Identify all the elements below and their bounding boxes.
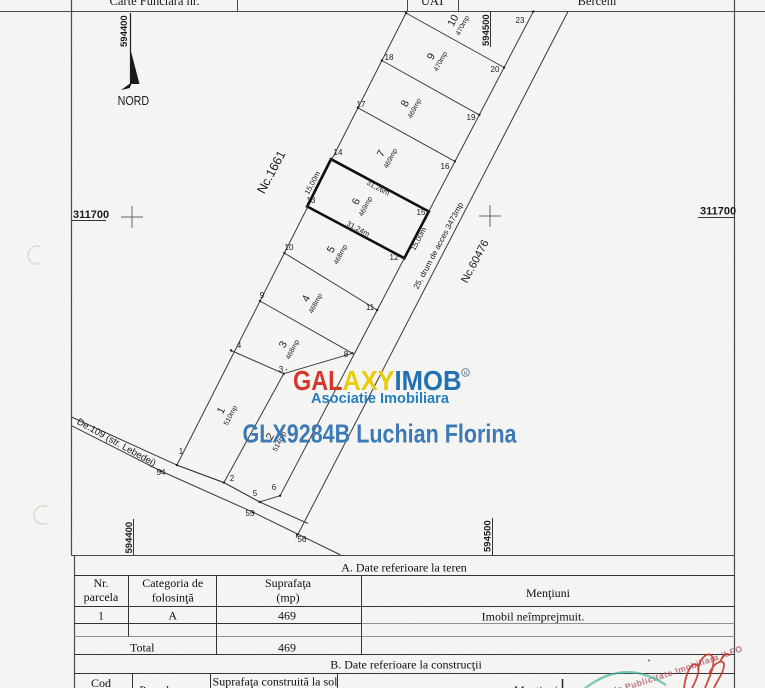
svg-text:8: 8	[344, 350, 349, 359]
svg-text:B. Date referioare la construc: B. Date referioare la construcţii	[330, 658, 482, 672]
svg-text:311700: 311700	[700, 206, 736, 218]
svg-text:1: 1	[98, 609, 104, 623]
svg-text:Menţiuni: Menţiuni	[514, 683, 559, 688]
svg-text:594400: 594400	[124, 522, 135, 554]
svg-text:15: 15	[417, 208, 426, 217]
svg-text:23: 23	[516, 16, 525, 25]
svg-text:17: 17	[357, 100, 366, 109]
svg-text:Asociatie Imobiliara: Asociatie Imobiliara	[311, 391, 450, 407]
svg-text:19: 19	[467, 113, 476, 122]
svg-text:11: 11	[366, 303, 375, 312]
svg-text:18: 18	[385, 53, 394, 62]
svg-text:9: 9	[260, 291, 265, 300]
svg-text:469: 469	[278, 641, 296, 655]
svg-text:55: 55	[246, 509, 255, 518]
svg-text:Imobil neîmprejmuit.: Imobil neîmprejmuit.	[482, 610, 585, 624]
svg-text:Suprafaţa construită la sol: Suprafaţa construită la sol	[213, 675, 339, 688]
svg-text:A. Date referioare la teren: A. Date referioare la teren	[341, 561, 467, 575]
svg-text:311700: 311700	[73, 209, 109, 221]
svg-text:3: 3	[279, 365, 284, 374]
svg-text:2: 2	[230, 474, 235, 483]
svg-text:594400: 594400	[119, 15, 130, 47]
svg-text:Suprafaţa: Suprafaţa	[265, 576, 312, 590]
svg-text:Parcela: Parcela	[139, 683, 175, 688]
svg-text:parcela: parcela	[84, 590, 119, 604]
svg-text:Total: Total	[130, 641, 155, 655]
svg-text:4: 4	[237, 341, 242, 350]
svg-text:14: 14	[334, 148, 343, 157]
svg-text:GLX9284B Luchian Florina: GLX9284B Luchian Florina	[243, 419, 517, 449]
svg-text:Berceni: Berceni	[578, 0, 617, 8]
svg-text:UAT: UAT	[421, 0, 446, 8]
svg-text:594500: 594500	[481, 14, 492, 46]
svg-text:594500: 594500	[483, 520, 494, 552]
svg-text:20: 20	[491, 65, 500, 74]
svg-text:Cod: Cod	[91, 676, 111, 688]
svg-text:469: 469	[278, 609, 296, 623]
svg-text:54: 54	[157, 468, 166, 477]
svg-text:folosinţă: folosinţă	[152, 591, 195, 605]
svg-text:12: 12	[390, 253, 399, 262]
svg-text:16: 16	[441, 162, 450, 171]
svg-text:(mp): (mp)	[276, 591, 299, 605]
svg-text:NORD: NORD	[118, 93, 150, 108]
svg-text:56: 56	[298, 535, 307, 544]
svg-text:1: 1	[179, 447, 184, 456]
svg-text:Nr.: Nr.	[94, 576, 109, 590]
svg-text:13: 13	[307, 196, 316, 205]
svg-text:Menţiuni: Menţiuni	[526, 586, 571, 600]
svg-text:R: R	[464, 371, 468, 377]
svg-text:5: 5	[253, 489, 258, 498]
svg-text:6: 6	[272, 483, 277, 492]
svg-text:Categoria de: Categoria de	[142, 576, 203, 590]
svg-text:10: 10	[285, 243, 294, 252]
svg-text:A: A	[168, 609, 177, 623]
svg-text:Carte Funciara nr.: Carte Funciara nr.	[110, 0, 200, 8]
